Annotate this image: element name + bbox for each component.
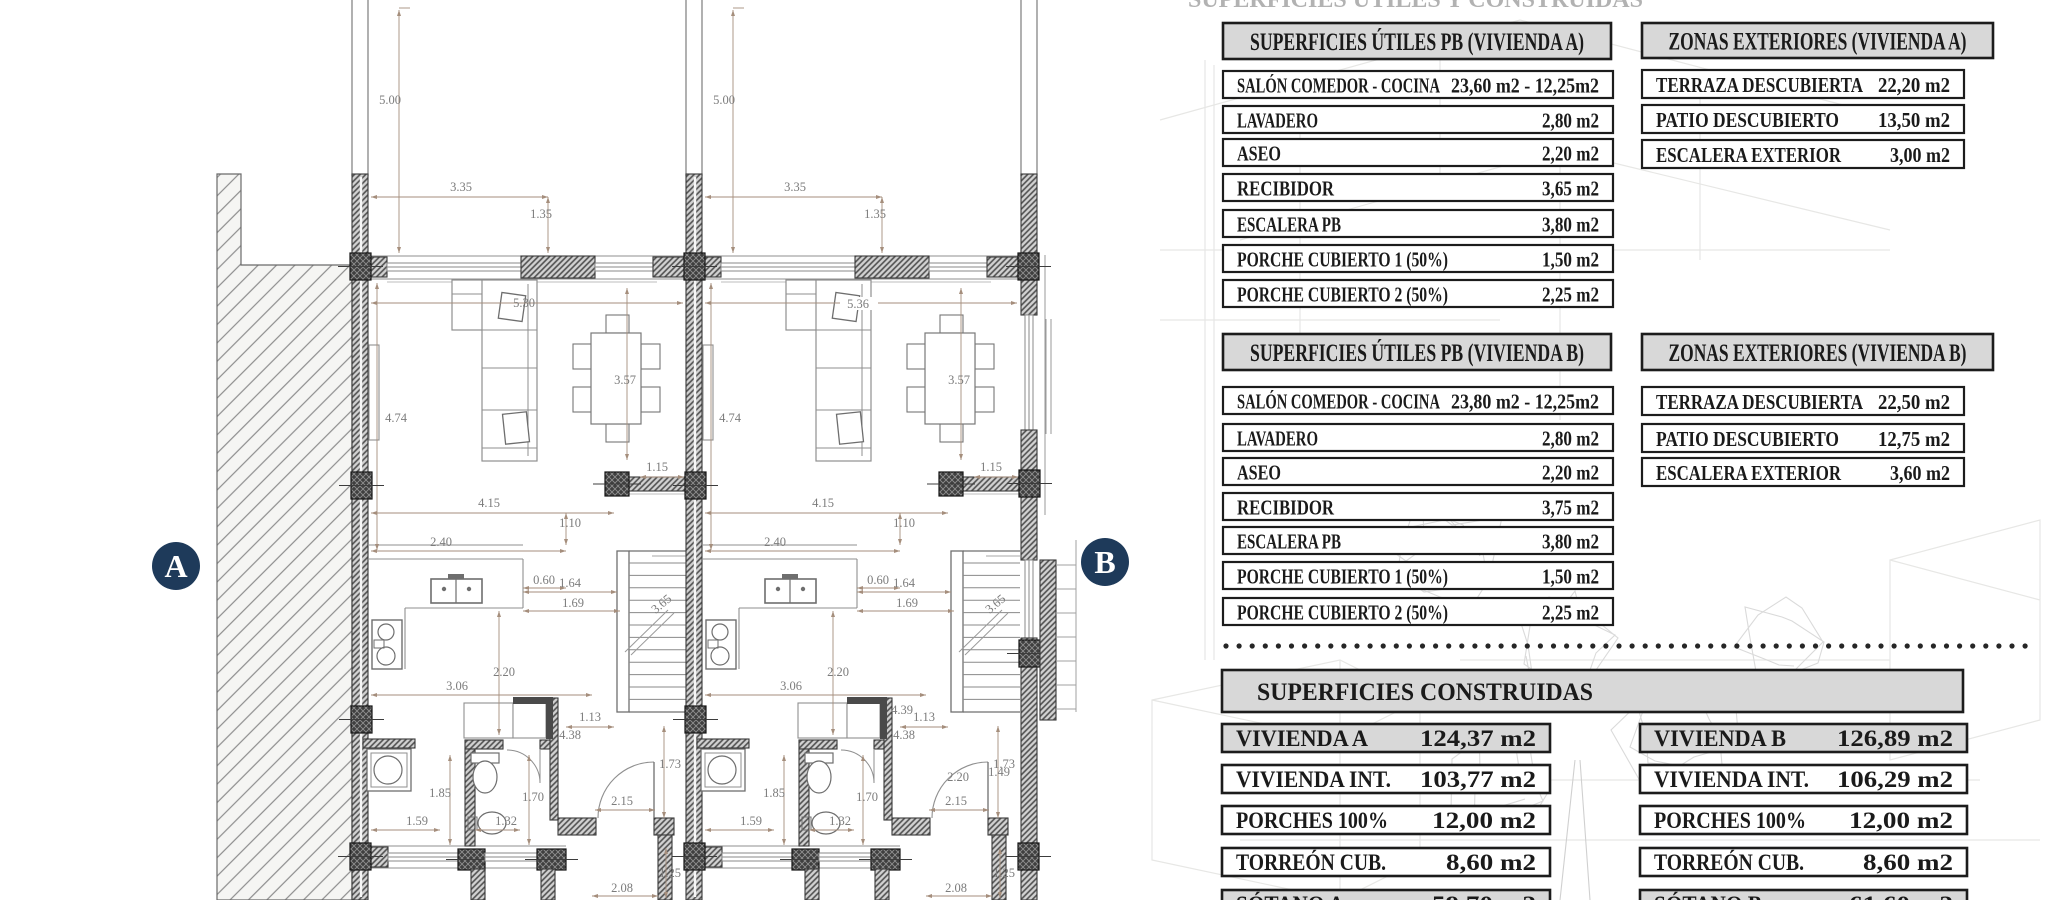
svg-text:12,00 m2: 12,00 m2 [1849,808,1953,833]
svg-text:1.10: 1.10 [559,516,581,530]
svg-text:VIVIENDA B: VIVIENDA B [1654,726,1786,751]
svg-text:PORCHE CUBIERTO 1 (50%): PORCHE CUBIERTO 1 (50%) [1237,565,1448,589]
svg-text:2.20: 2.20 [493,665,515,679]
svg-text:59,70 m2: 59,70 m2 [1432,892,1536,900]
svg-text:ZONAS EXTERIORES (VIVIENDA A): ZONAS EXTERIORES (VIVIENDA A) [1669,29,1967,56]
svg-text:12,00 m2: 12,00 m2 [1432,808,1536,833]
svg-text:2.20: 2.20 [947,770,969,784]
svg-text:1.85: 1.85 [429,786,451,800]
svg-text:5.36: 5.36 [847,297,869,311]
svg-text:SUPERFICIES CONSTRUIDAS: SUPERFICIES CONSTRUIDAS [1257,679,1593,706]
svg-text:TERRAZA DESCUBIERTA: TERRAZA DESCUBIERTA [1656,390,1864,414]
svg-text:5.00: 5.00 [379,93,401,107]
svg-text:2,25 m2: 2,25 m2 [1542,283,1599,307]
svg-text:2.08: 2.08 [611,881,633,895]
svg-text:3,80 m2: 3,80 m2 [1542,530,1599,554]
svg-text:2,25 m2: 2,25 m2 [1542,601,1599,625]
svg-text:VIVIENDA INT.: VIVIENDA INT. [1654,767,1809,792]
svg-text:VIVIENDA A: VIVIENDA A [1236,726,1368,751]
svg-text:ESCALERA EXTERIOR: ESCALERA EXTERIOR [1656,461,1842,485]
svg-text:SÓTANO B: SÓTANO B [1654,891,1762,900]
svg-text:4.38: 4.38 [559,728,581,742]
svg-text:12,75 m2: 12,75 m2 [1878,427,1950,451]
svg-text:ZONAS EXTERIORES (VIVIENDA B): ZONAS EXTERIORES (VIVIENDA B) [1669,340,1967,367]
svg-text:3,75 m2: 3,75 m2 [1542,496,1599,520]
svg-text:5.30: 5.30 [513,296,535,310]
svg-text:PORCHES 100%: PORCHES 100% [1654,808,1806,833]
svg-text:SALÓN COMEDOR - COCINA: SALÓN COMEDOR - COCINA [1237,74,1441,98]
svg-text:4.15: 4.15 [478,496,500,510]
svg-text:2.40: 2.40 [430,535,452,549]
svg-text:1.49: 1.49 [988,765,1010,779]
svg-text:3,00 m2: 3,00 m2 [1890,143,1950,167]
svg-text:PORCHE CUBIERTO 1 (50%): PORCHE CUBIERTO 1 (50%) [1237,248,1448,272]
svg-text:126,89 m2: 126,89 m2 [1837,726,1953,751]
svg-text:SUPERFICIES UTILES Y CONSTRUID: SUPERFICIES UTILES Y CONSTRUIDAS [1188,0,1643,13]
svg-text:3.35: 3.35 [450,180,472,194]
svg-text:1.25: 1.25 [659,866,681,880]
svg-text:LAVADERO: LAVADERO [1237,427,1318,451]
svg-text:TORREÓN CUB.: TORREÓN CUB. [1236,849,1386,875]
svg-text:4.39: 4.39 [891,703,913,717]
svg-text:1.15: 1.15 [646,460,668,474]
svg-text:4.74: 4.74 [385,411,408,425]
svg-text:ESCALERA PB: ESCALERA PB [1237,530,1341,554]
svg-text:1.32: 1.32 [495,814,517,828]
svg-text:2.15: 2.15 [611,794,633,808]
svg-text:B: B [1094,544,1115,580]
svg-text:PORCHES 100%: PORCHES 100% [1236,808,1388,833]
svg-text:23,80 m2 - 12,25m2: 23,80 m2 - 12,25m2 [1451,390,1599,414]
svg-text:PORCHE CUBIERTO 2 (50%): PORCHE CUBIERTO 2 (50%) [1237,283,1448,307]
svg-text:1,50 m2: 1,50 m2 [1542,248,1599,272]
svg-text:PATIO DESCUBIERTO: PATIO DESCUBIERTO [1656,108,1839,132]
svg-text:1,50 m2: 1,50 m2 [1542,565,1599,589]
svg-text:3,60 m2: 3,60 m2 [1890,461,1950,485]
svg-text:1.64: 1.64 [559,576,582,590]
svg-text:VIVIENDA INT.: VIVIENDA INT. [1236,767,1391,792]
svg-text:106,29 m2: 106,29 m2 [1837,767,1953,792]
svg-text:RECIBIDOR: RECIBIDOR [1237,496,1335,520]
svg-text:3,80 m2: 3,80 m2 [1542,213,1599,237]
svg-text:LAVADERO: LAVADERO [1237,109,1318,133]
svg-text:1.69: 1.69 [562,596,584,610]
svg-text:22,50 m2: 22,50 m2 [1878,390,1950,414]
svg-text:3.57: 3.57 [614,373,636,387]
svg-text:1.35: 1.35 [530,207,552,221]
svg-text:PATIO DESCUBIERTO: PATIO DESCUBIERTO [1656,427,1839,451]
svg-text:3.06: 3.06 [446,679,468,693]
svg-text:23,60 m2 - 12,25m2: 23,60 m2 - 12,25m2 [1451,74,1599,98]
svg-text:61,60 m2: 61,60 m2 [1849,892,1953,900]
svg-text:1.59: 1.59 [406,814,428,828]
svg-text:2,20 m2: 2,20 m2 [1542,142,1599,166]
svg-text:SUPERFICIES ÚTILES PB (VIVIEND: SUPERFICIES ÚTILES PB (VIVIENDA B) [1250,339,1584,367]
svg-text:2,80 m2: 2,80 m2 [1542,427,1599,451]
svg-text:RECIBIDOR: RECIBIDOR [1237,177,1335,201]
svg-text:13,50 m2: 13,50 m2 [1878,108,1950,132]
svg-text:0.60: 0.60 [533,573,555,587]
svg-text:ESCALERA EXTERIOR: ESCALERA EXTERIOR [1656,143,1842,167]
svg-text:8,60 m2: 8,60 m2 [1863,850,1953,875]
svg-text:TERRAZA DESCUBIERTA: TERRAZA DESCUBIERTA [1656,73,1864,97]
svg-text:103,77 m2: 103,77 m2 [1420,767,1536,792]
svg-text:ESCALERA PB: ESCALERA PB [1237,213,1341,237]
svg-text:22,20 m2: 22,20 m2 [1878,73,1950,97]
svg-text:ASEO: ASEO [1237,461,1281,485]
svg-text:124,37 m2: 124,37 m2 [1420,726,1536,751]
svg-text:2,80 m2: 2,80 m2 [1542,109,1599,133]
svg-text:3,65 m2: 3,65 m2 [1542,177,1599,201]
svg-text:PORCHE CUBIERTO 2 (50%): PORCHE CUBIERTO 2 (50%) [1237,601,1448,625]
svg-text:1.73: 1.73 [659,757,681,771]
svg-text:SUPERFICIES ÚTILES PB (VIVIEND: SUPERFICIES ÚTILES PB (VIVIENDA A) [1250,28,1584,56]
svg-text:1.13: 1.13 [579,710,601,724]
svg-text:1.70: 1.70 [522,790,544,804]
svg-text:TORREÓN CUB.: TORREÓN CUB. [1654,849,1804,875]
svg-text:ASEO: ASEO [1237,142,1281,166]
svg-text:8,60 m2: 8,60 m2 [1446,850,1536,875]
svg-text:SALÓN COMEDOR - COCINA: SALÓN COMEDOR - COCINA [1237,390,1441,414]
svg-text:A: A [164,548,187,584]
svg-text:2,20 m2: 2,20 m2 [1542,461,1599,485]
svg-text:SÓTANO A: SÓTANO A [1236,891,1344,900]
